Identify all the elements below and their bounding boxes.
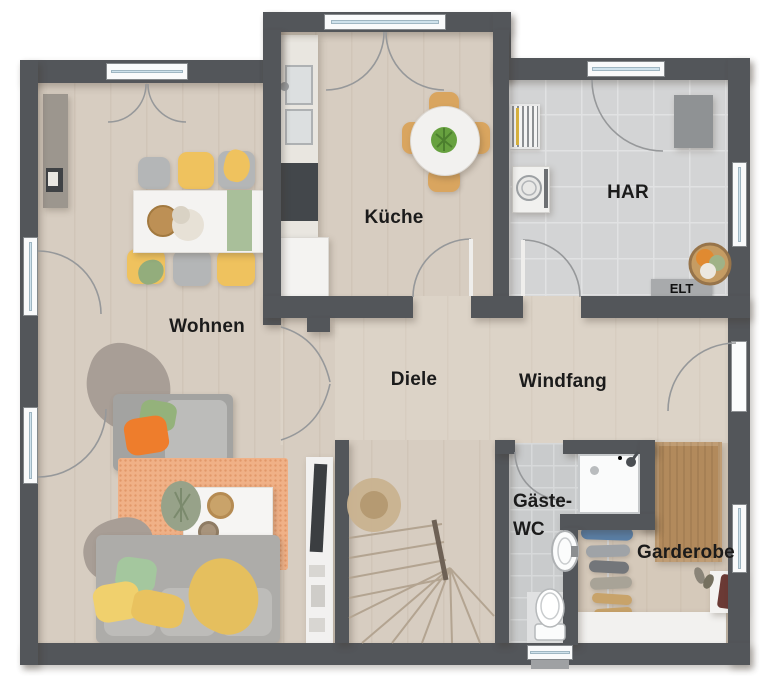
coat-item-grey — [586, 544, 630, 558]
window — [23, 407, 38, 484]
wall-kueche-har — [493, 30, 509, 298]
drying-rack-items — [516, 108, 519, 145]
room-label-wohnen: Wohnen — [169, 316, 245, 338]
garderobe-bench — [578, 612, 726, 644]
sideboard-decor-paper — [48, 172, 58, 186]
wall-wc-top-corner — [495, 440, 515, 454]
wall-left — [20, 60, 38, 665]
wall-mid-3 — [581, 296, 750, 318]
wall-bottom — [20, 643, 750, 665]
kitchen-table — [410, 106, 480, 176]
window — [23, 237, 38, 316]
front-door — [731, 341, 747, 412]
cooktop — [279, 163, 318, 221]
floor-diele-windfang — [279, 296, 730, 445]
coat-item-grey — [590, 576, 633, 590]
drying-rack — [510, 104, 540, 149]
gaeste-wc-line2: WC — [513, 516, 572, 544]
wall-mid-2 — [471, 296, 523, 318]
tv-board-decor — [309, 618, 325, 632]
gaeste-wc-line1: Gäste- — [513, 488, 572, 516]
washing-machine-door-edge — [544, 169, 548, 208]
window — [732, 162, 747, 247]
room-label-garderobe: Garderobe — [637, 542, 735, 564]
wall-wc-right — [563, 528, 578, 645]
wall-mid-1 — [263, 296, 413, 318]
wall-wohnen-kueche — [263, 30, 281, 325]
room-label-kueche: Küche — [364, 207, 423, 229]
table-runner — [227, 190, 252, 251]
dining-chair — [138, 157, 170, 189]
coat-item-darkgrey — [589, 560, 630, 574]
tv-board-decor — [311, 585, 325, 607]
kitchen-sink — [285, 65, 313, 105]
floor-stairwell — [335, 440, 495, 645]
dining-chair — [173, 250, 211, 286]
kitchen-sink — [285, 109, 313, 145]
window — [587, 61, 665, 77]
room-label-har: HAR — [607, 182, 649, 204]
window — [324, 14, 446, 30]
pillow-orange — [122, 414, 170, 457]
wall-stair-right — [495, 440, 509, 643]
faucet — [280, 82, 289, 91]
window — [527, 645, 573, 660]
dining-chair — [217, 250, 255, 286]
room-label-diele: Diele — [391, 369, 437, 391]
har-cabinet — [674, 95, 713, 148]
dining-chair — [178, 152, 214, 189]
tv-board-decor — [309, 565, 325, 577]
window — [106, 63, 188, 80]
room-label-elt: ELT — [651, 281, 712, 296]
room-label-gaeste-wc: Gäste- WC — [513, 488, 572, 543]
floorplan: Wohnen Küche HAR Diele Windfang Garderob… — [0, 0, 775, 688]
room-label-windfang: Windfang — [519, 371, 607, 393]
kitchen-appliance — [277, 237, 329, 300]
wall-stub — [307, 318, 330, 332]
tray — [207, 492, 234, 519]
shower — [578, 454, 640, 514]
shower-drain — [590, 466, 599, 475]
wall-stair-left — [335, 440, 349, 643]
